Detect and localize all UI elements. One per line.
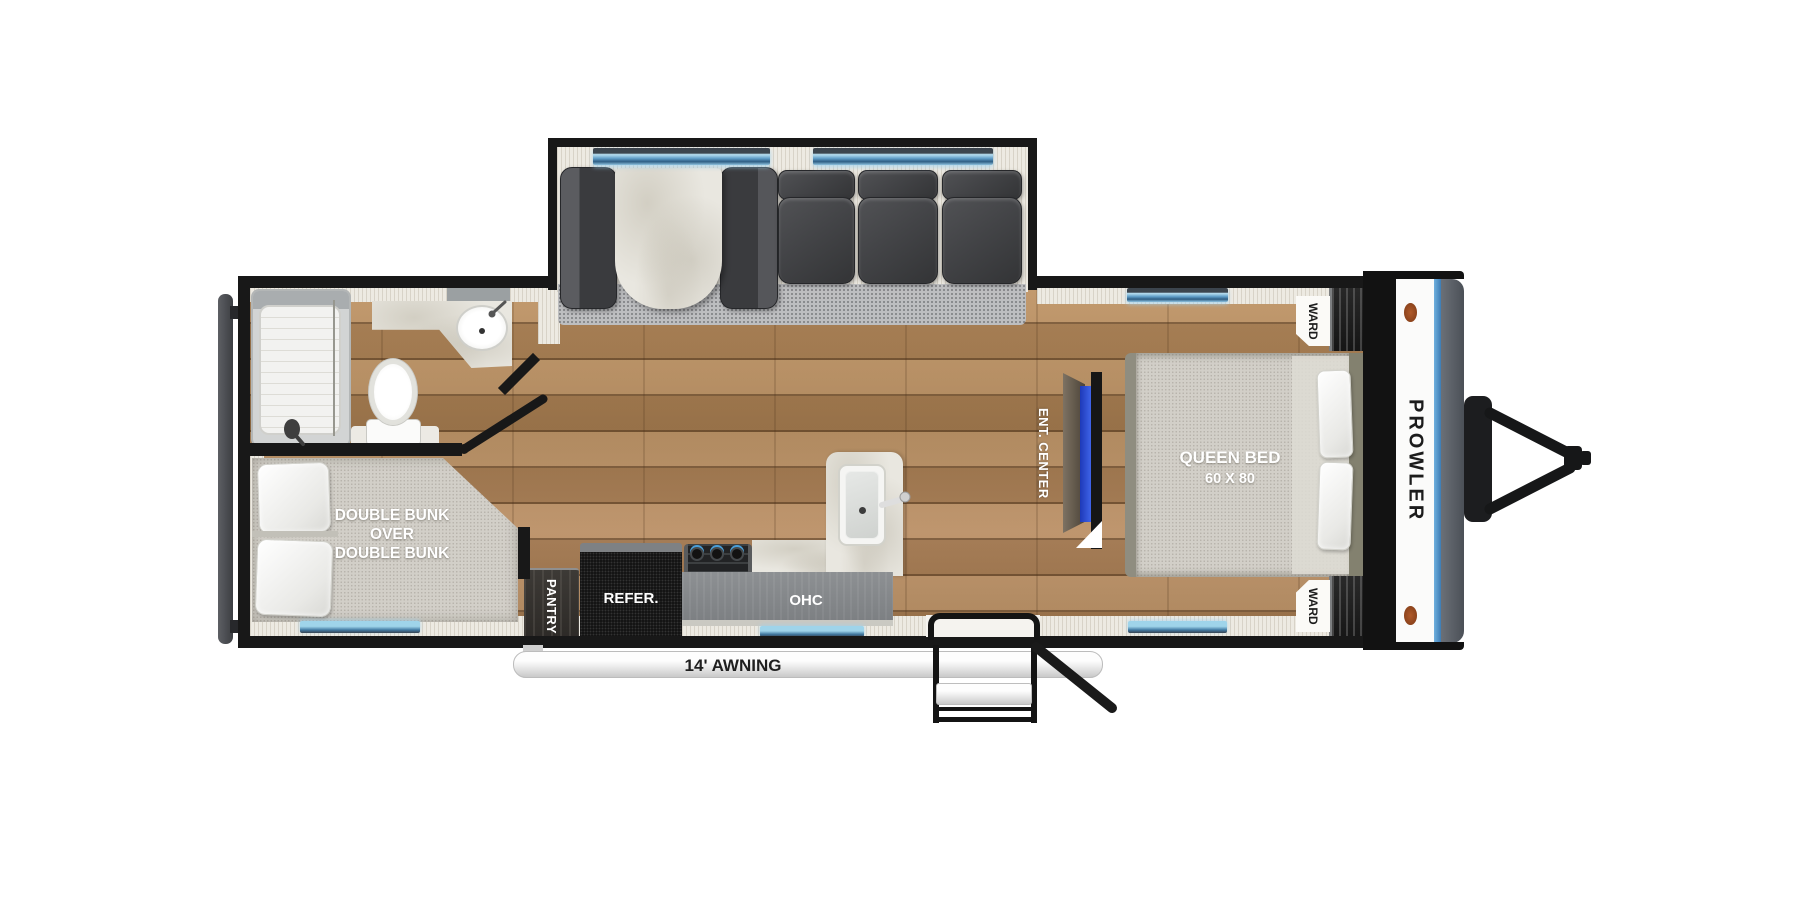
kitchen-faucet-handle bbox=[900, 492, 910, 502]
floorplan-canvas: DOUBLE BUNK OVER DOUBLE BUNK PANTRY REFE… bbox=[0, 0, 1800, 900]
bathroom-door-leaf bbox=[466, 399, 543, 448]
hitch-aframe-upper bbox=[1490, 413, 1570, 454]
hitch-aframe-lower bbox=[1490, 468, 1570, 509]
bath-faucet bbox=[494, 302, 505, 312]
hitch-coupler bbox=[1564, 446, 1582, 470]
entry-step-handrail bbox=[1036, 647, 1112, 708]
shower-drain-tail bbox=[297, 437, 303, 444]
detail-overlay bbox=[0, 0, 1800, 900]
bath-faucet-base bbox=[489, 311, 496, 318]
hitch-coupler-nub bbox=[1580, 451, 1591, 465]
bathroom-door-hinge bbox=[459, 444, 469, 454]
bathroom-angled-wall bbox=[505, 360, 533, 388]
